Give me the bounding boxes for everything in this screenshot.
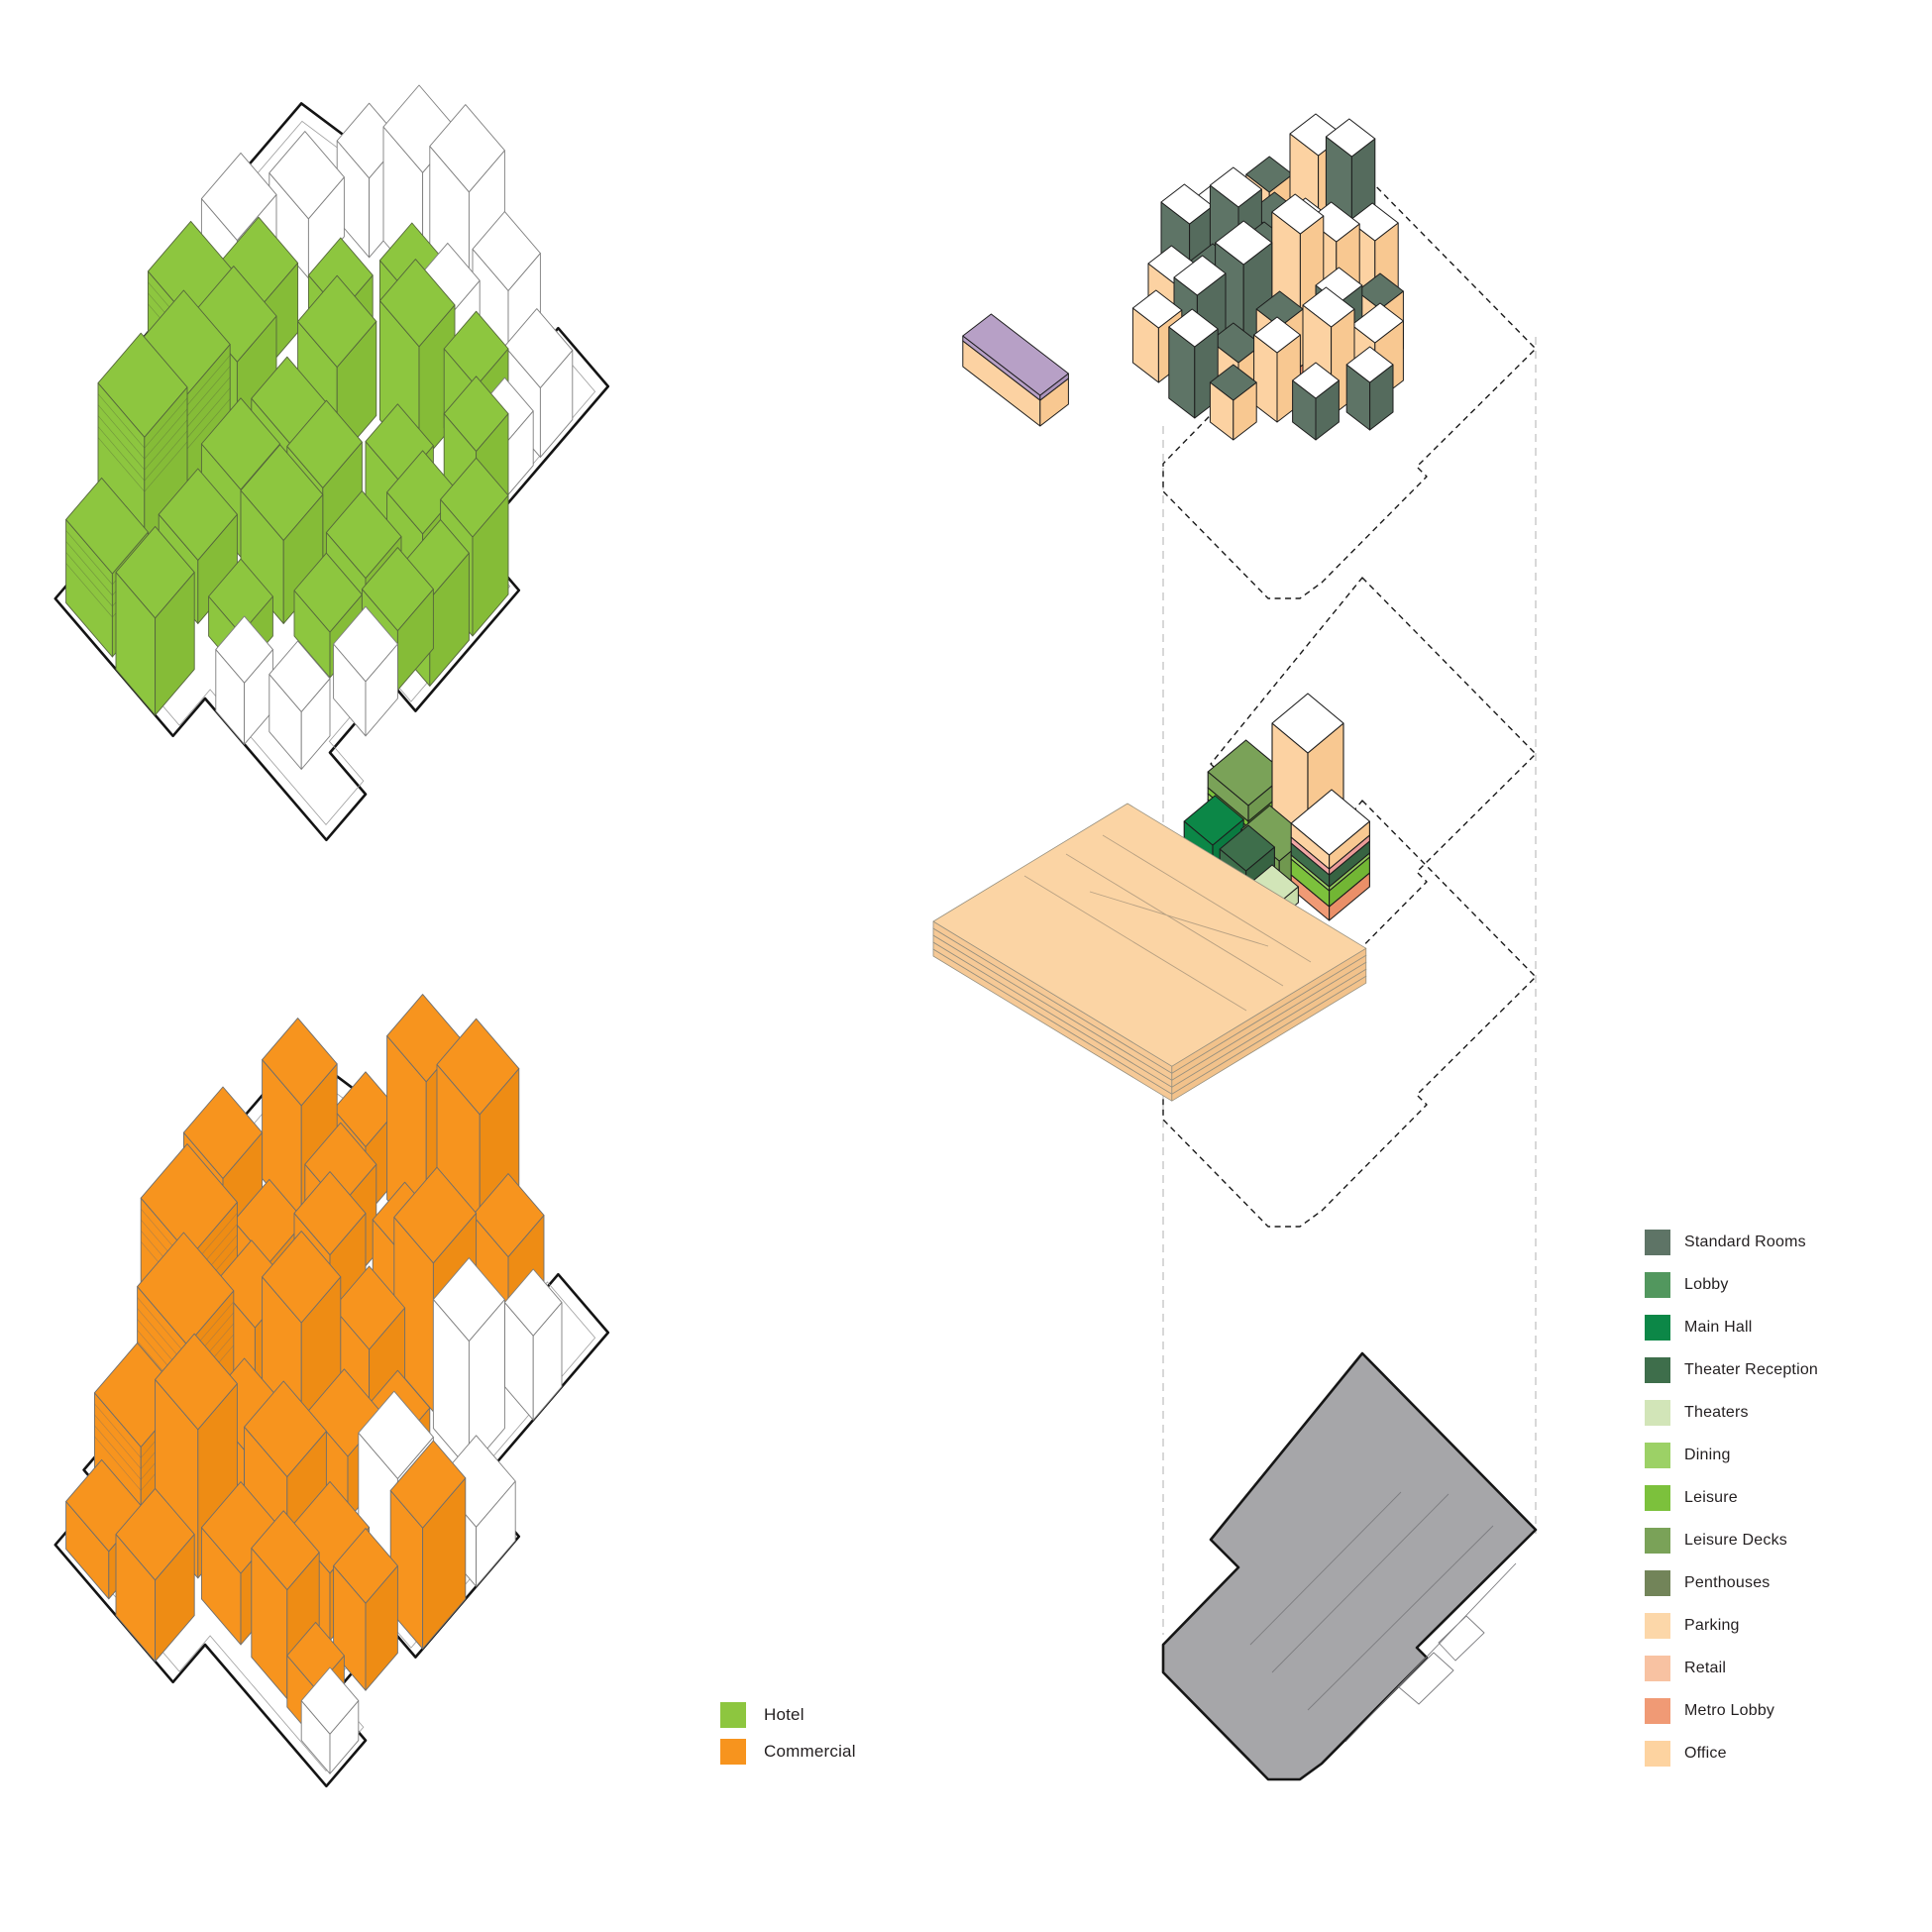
commercial-massing-axon bbox=[55, 995, 608, 1786]
legend-item: Parking bbox=[1645, 1604, 1818, 1647]
legend-swatch bbox=[1645, 1400, 1670, 1426]
legend-swatch bbox=[1645, 1357, 1670, 1383]
legend-label: Hotel bbox=[764, 1705, 805, 1725]
legend-item: Hotel bbox=[720, 1696, 856, 1733]
legend-item: Theaters bbox=[1645, 1391, 1818, 1434]
legend-label: Retail bbox=[1684, 1660, 1726, 1677]
legend-item: Standard Rooms bbox=[1645, 1221, 1818, 1263]
legend-item: Office bbox=[1645, 1732, 1818, 1774]
legend-label: Theater Reception bbox=[1684, 1361, 1818, 1379]
legend-item: Penthouses bbox=[1645, 1561, 1818, 1604]
legend-swatch bbox=[1645, 1528, 1670, 1554]
legend-item: Leisure Decks bbox=[1645, 1519, 1818, 1561]
legend-label: Lobby bbox=[1684, 1276, 1729, 1294]
site-plate bbox=[1163, 1353, 1536, 1779]
axonometric-diagrams-canvas bbox=[0, 0, 1932, 1932]
legend-swatch bbox=[1645, 1570, 1670, 1596]
legend-swatch bbox=[1645, 1613, 1670, 1639]
legend-program: Standard Rooms Lobby Main Hall Theater R… bbox=[1645, 1221, 1818, 1774]
legend-swatch bbox=[1645, 1230, 1670, 1255]
legend-swatch bbox=[720, 1702, 746, 1728]
legend-swatch bbox=[1645, 1443, 1670, 1468]
legend-label: Commercial bbox=[764, 1742, 856, 1762]
legend-label: Main Hall bbox=[1684, 1319, 1753, 1337]
legend-swatch bbox=[1645, 1315, 1670, 1341]
legend-item: Theater Reception bbox=[1645, 1348, 1818, 1391]
legend-item: Retail bbox=[1645, 1647, 1818, 1689]
legend-label: Metro Lobby bbox=[1684, 1702, 1774, 1720]
legend-swatch bbox=[1645, 1698, 1670, 1724]
legend-swatch bbox=[1645, 1741, 1670, 1767]
legend-item: Main Hall bbox=[1645, 1306, 1818, 1348]
legend-label: Office bbox=[1684, 1745, 1727, 1763]
legend-item: Metro Lobby bbox=[1645, 1689, 1818, 1732]
legend-label: Parking bbox=[1684, 1617, 1740, 1635]
legend-label: Standard Rooms bbox=[1684, 1234, 1806, 1251]
legend-label: Theaters bbox=[1684, 1404, 1749, 1422]
program-diagram-sheet: Hotel Commercial Standard Rooms Lobby Ma… bbox=[0, 0, 1932, 1932]
legend-item: Commercial bbox=[720, 1733, 856, 1770]
legend-swatch bbox=[1645, 1485, 1670, 1511]
legend-label: Dining bbox=[1684, 1447, 1731, 1464]
legend-item: Leisure bbox=[1645, 1476, 1818, 1519]
legend-item: Dining bbox=[1645, 1434, 1818, 1476]
legend-label: Leisure Decks bbox=[1684, 1532, 1787, 1550]
legend-swatch bbox=[1645, 1656, 1670, 1681]
legend-label: Leisure bbox=[1684, 1489, 1738, 1507]
legend-item: Lobby bbox=[1645, 1263, 1818, 1306]
legend-hotel-commercial: Hotel Commercial bbox=[720, 1696, 856, 1770]
hotel-massing-axon bbox=[55, 85, 608, 840]
legend-swatch bbox=[1645, 1272, 1670, 1298]
legend-label: Penthouses bbox=[1684, 1574, 1771, 1592]
legend-swatch bbox=[720, 1739, 746, 1765]
exploded-standard-rooms-layer bbox=[963, 114, 1404, 440]
